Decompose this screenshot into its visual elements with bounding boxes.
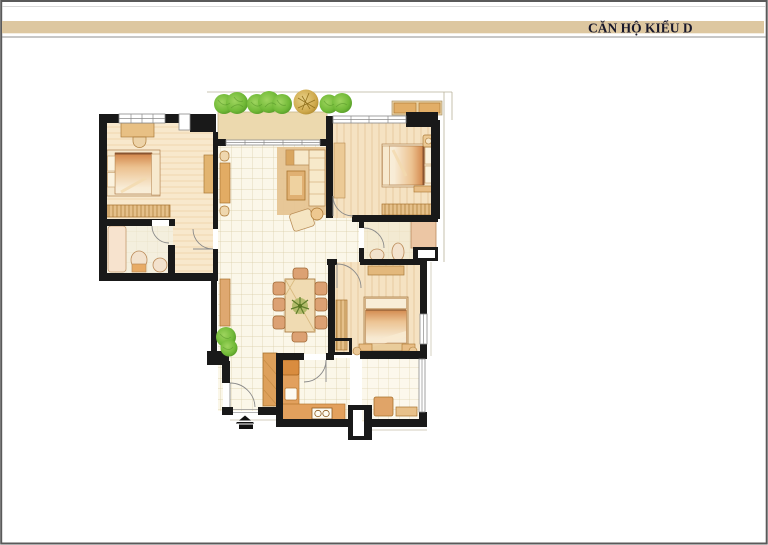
svg-text:CĂN HỘ KIỂU D: CĂN HỘ KIỂU D [588,21,693,36]
